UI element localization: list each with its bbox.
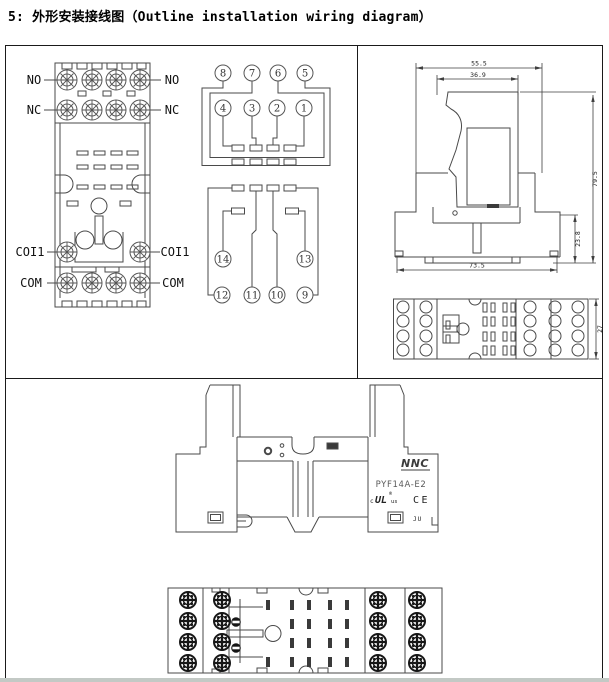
scan-edge-artifact [0, 678, 609, 682]
nc-terminal-row [57, 100, 150, 120]
label-coil-right: COI1 [161, 245, 190, 259]
pin-7: 7 [249, 69, 255, 80]
ce-mark-icon: CE [413, 495, 430, 506]
vertical-divider [357, 45, 358, 378]
pin-14: 14 [217, 255, 230, 266]
label-no-right: NO [165, 73, 179, 87]
socket-outline-bottom [165, 585, 450, 680]
pin-11: 11 [246, 291, 259, 302]
ul-registered-icon: ® [389, 491, 393, 497]
socket-outline [55, 63, 150, 307]
label-com-right: COM [162, 276, 184, 290]
label-coil-left: COI1 [16, 245, 45, 259]
pin-8: 8 [220, 69, 226, 80]
label-no-left: NO [27, 73, 41, 87]
arrowheads [397, 66, 595, 271]
left-cutout [55, 175, 73, 193]
no-terminal-row [57, 70, 150, 90]
top-tabs [62, 63, 146, 69]
side-view-dimension-drawing: 55.5 36.9 79.5 23.8 73.5 [393, 55, 605, 290]
pin-10: 10 [271, 291, 284, 302]
horizontal-divider [5, 378, 602, 379]
pin-12: 12 [216, 291, 229, 302]
right-cutout [132, 175, 150, 193]
label-nc-right: NC [165, 103, 179, 117]
pin-4: 4 [220, 104, 226, 115]
socket-front-view: NO NO NC NC COI1 COI1 COM COM [10, 58, 200, 313]
dim-socket-depth: 27 [596, 325, 604, 333]
pin-5: 5 [302, 69, 308, 80]
dim-overall-width: 55.5 [471, 60, 487, 68]
coil-bracket [75, 232, 123, 262]
front-outline [176, 385, 438, 532]
pin-circles [214, 65, 313, 303]
bottom-view-outline [168, 588, 442, 673]
ju-marking: JU [413, 516, 422, 523]
pin-2: 2 [274, 104, 280, 115]
top-view-dimension-drawing: 27 [393, 295, 608, 367]
socket-outline-front: NNC PYF14A-E2 c UL ® us CE JU [170, 383, 445, 538]
brand-logo: NNC [401, 457, 429, 470]
dim-relay-width: 36.9 [470, 71, 486, 79]
contact-slots [77, 151, 138, 189]
datasheet-page: 5: 外形安装接线图（Outline installation wiring d… [0, 0, 609, 682]
ul-us-mark: us [391, 499, 398, 505]
dim-base-width: 73.5 [469, 262, 485, 270]
dim-socket-height: 23.8 [574, 231, 582, 247]
model-number: PYF14A-E2 [376, 480, 427, 490]
page-title: 5: 外形安装接线图（Outline installation wiring d… [8, 6, 432, 25]
label-com-left: COM [20, 276, 42, 290]
contact-block-wiring [202, 81, 330, 166]
coil-block-wiring [208, 185, 318, 295]
product-marking: NNC PYF14A-E2 c UL ® us CE JU [370, 457, 430, 523]
pin-1: 1 [301, 104, 307, 115]
label-nc-left: NC [27, 103, 41, 117]
pin-3: 3 [249, 104, 255, 115]
pin-9: 9 [302, 291, 308, 302]
pin-slots [266, 600, 349, 667]
dim-overall-height: 79.5 [591, 171, 599, 187]
bottom-tabs [62, 301, 146, 307]
bottom-screw-terminals [180, 592, 425, 671]
com-terminal-row [57, 273, 150, 293]
wiring-schematic: 8 7 6 5 4 3 2 1 14 13 12 11 10 9 [197, 60, 342, 305]
ul-mark-icon: UL [375, 495, 387, 506]
relay-profile [446, 92, 518, 215]
ul-c-mark: c [370, 498, 374, 505]
coil-terminal-row [57, 242, 150, 262]
pin-6: 6 [275, 69, 281, 80]
terminal-slots [483, 303, 515, 355]
top-view-outline [394, 299, 589, 359]
depth-dimension: 27 [589, 299, 604, 359]
pin-13: 13 [299, 255, 312, 266]
socket-profile [395, 173, 560, 263]
